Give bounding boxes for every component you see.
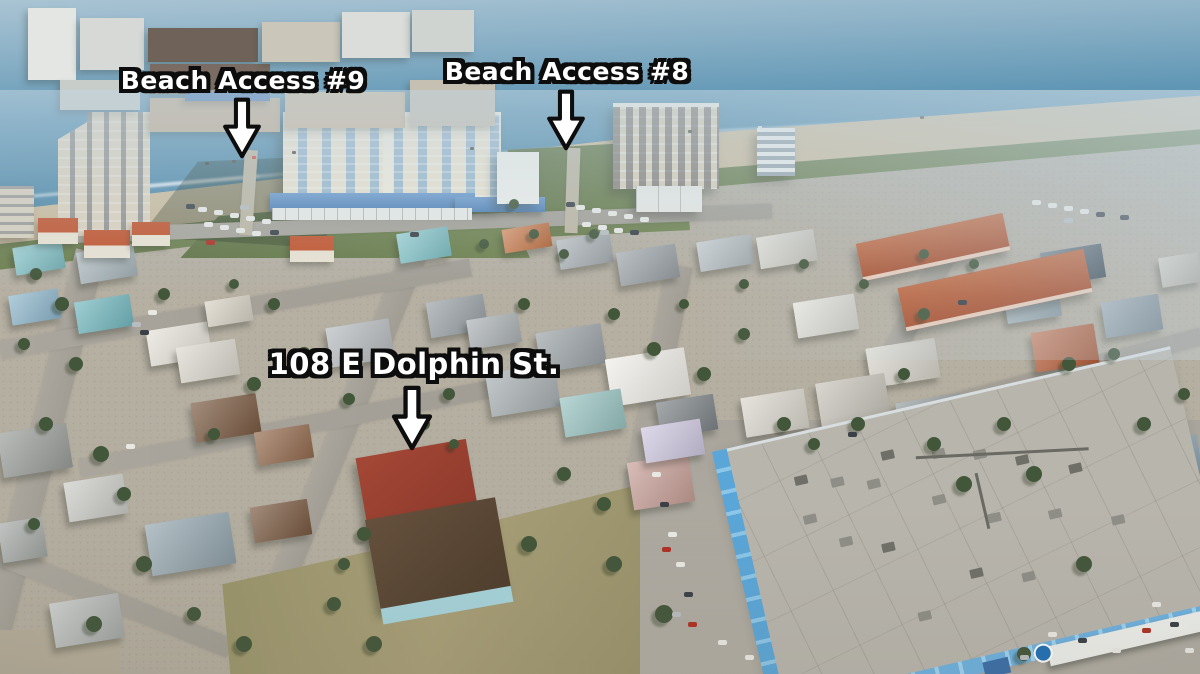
down-arrow-icon xyxy=(389,385,435,451)
annotation-beach-access-8: Beach Access #8 xyxy=(445,57,689,86)
aerial-photo: Beach Access #9 Beach Access #8 108 E Do… xyxy=(0,0,1200,674)
vignette xyxy=(0,0,1200,674)
annotation-address: 108 E Dolphin St. xyxy=(269,347,560,381)
down-arrow-icon xyxy=(543,89,589,151)
annotation-beach-access-9: Beach Access #9 xyxy=(121,66,365,95)
down-arrow-icon xyxy=(220,97,264,159)
